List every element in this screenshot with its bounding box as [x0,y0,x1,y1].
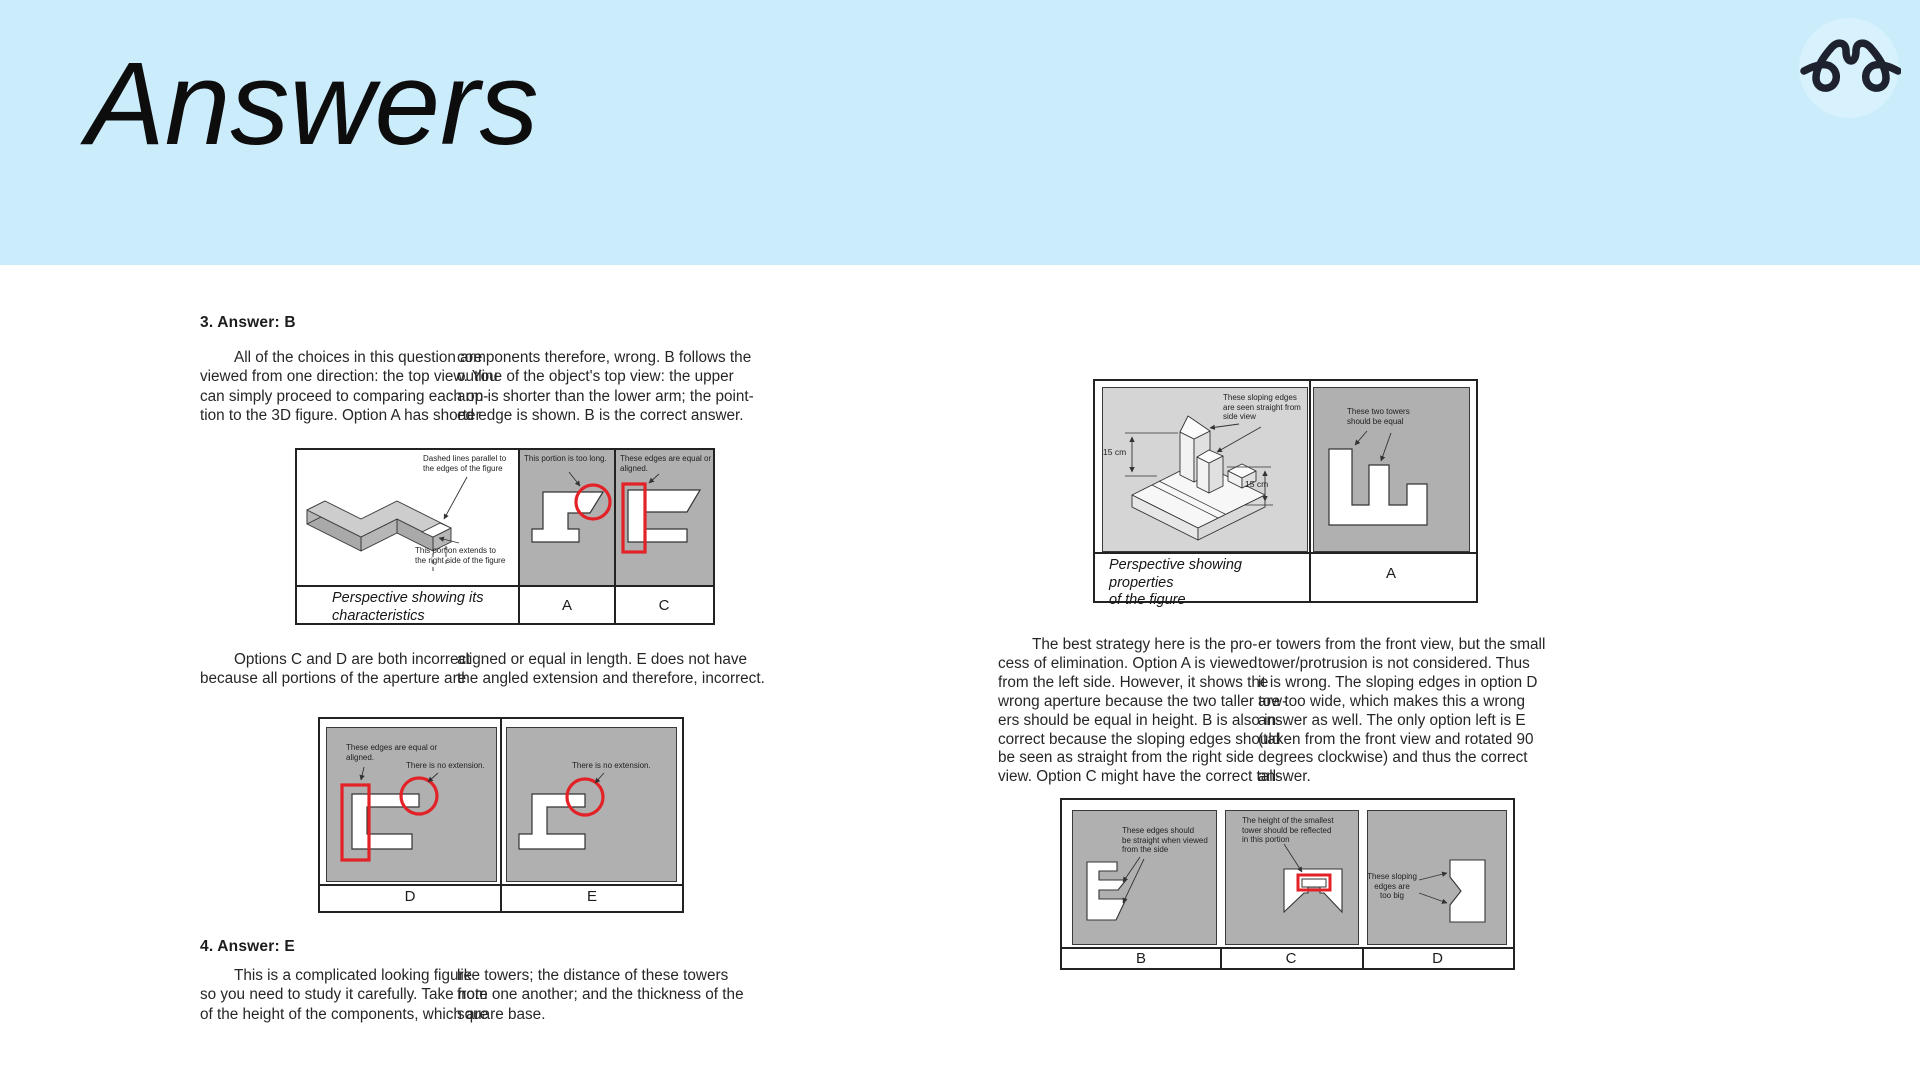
fig2-annotation-no-extension-d: There is no extension. [406,761,486,771]
fig1-annotation-too-long: This portion is too long. [524,454,612,464]
page-title: Answers [86,36,538,172]
fig1-annotation-dashed-lines: Dashed lines parallel tothe edges of the… [423,454,519,473]
fig2-label-e: E [502,888,682,905]
fig4-label-c: C [1220,950,1362,967]
slide: Answers 3. Answer: B All of the choices … [0,0,1920,1080]
figure-q4-perspective-a: These sloping edgesare seen straight fro… [1093,379,1478,603]
q3-paragraph2-col1: Options C and D are both incorrectbecaus… [200,650,438,689]
q4-elimination-col1: The best strategy here is the pro-cess o… [998,636,1234,787]
panel-a-bg [519,450,615,585]
fig1-annotation-edges-equal: These edges are equal oraligned. [620,454,712,473]
figure-q3-perspective-a-c: Dashed lines parallel tothe edges of the… [295,448,715,625]
fig3-label-a: A [1311,565,1471,582]
fig1-caption: Perspective showing itscharacteristics [332,590,512,625]
header-band: Answers [0,0,1920,265]
fig1-label-c: C [615,597,713,614]
fig2-annotation-edges-equal: These edges are equal oraligned. [346,743,446,762]
q4-paragraph1-col2: like towers; the distance of these tower… [457,966,695,1024]
panel-e-bg [506,727,677,882]
q3-paragraph1-col1: All of the choices in this question arev… [200,348,438,426]
q4-elimination-col2: er towers from the front view, but the s… [1258,636,1495,787]
q3-paragraph2-col2: aligned or equal in length. E does not h… [457,650,695,689]
fig4-annotation-c-height: The height of the smallesttower should b… [1242,816,1334,845]
q4-paragraph1-col1: This is a complicated looking figureso y… [200,966,438,1024]
brand-loop-logo-icon [1797,16,1901,120]
fig3-annotation-two-towers: These two towersshould be equal [1347,407,1459,426]
question-3-heading: 3. Answer: B [200,314,296,332]
fig1-label-a: A [519,597,615,614]
fig2-label-d: D [320,888,500,905]
figure-q3-d-e: These edges are equal oraligned. There i… [318,717,684,913]
fig3-dim-left: 15 cm [1103,447,1137,457]
fig2-annotation-no-extension-e: There is no extension. [572,761,652,771]
fig3-caption: Perspective showing propertiesof the fig… [1109,557,1309,610]
q3-paragraph1-col2: components therefore, wrong. B follows t… [457,348,695,426]
fig3-annotation-sloping-edges: These sloping edgesare seen straight fro… [1223,393,1313,422]
fig3-dim-right: 15 cm [1245,479,1281,489]
fig4-label-d: D [1362,950,1513,967]
figure-q4-b-c-d: These edges shouldbe straight when viewe… [1060,798,1515,970]
question-4-heading: 4. Answer: E [200,938,295,956]
fig4-annotation-b-edges: These edges shouldbe straight when viewe… [1122,826,1210,855]
fig4-annotation-d-sloping: These slopingedges aretoo big [1366,872,1418,901]
fig1-annotation-extends: This portion extends tothe right side of… [415,546,517,565]
fig4-label-b: B [1062,950,1220,967]
